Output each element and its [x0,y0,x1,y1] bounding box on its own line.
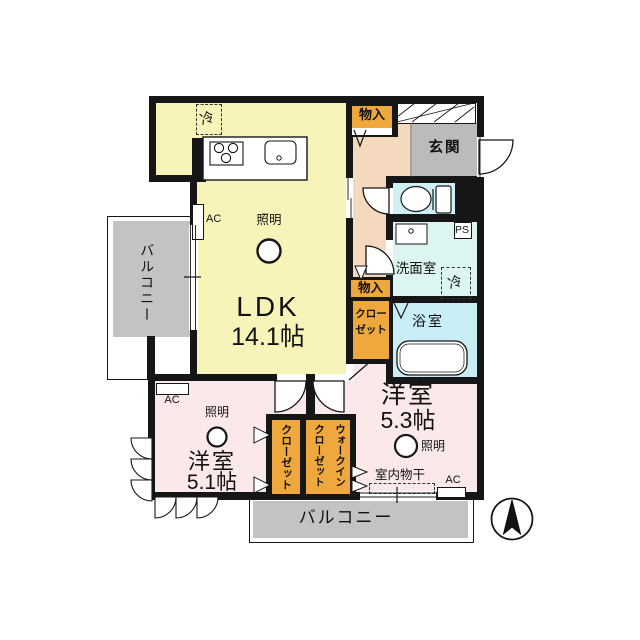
storage-label-walk-in-closet: ウォークイン クローゼット [308,424,350,494]
door-gap-toilet [386,188,393,214]
monoire-top-interior [352,128,392,135]
entrance-porch [397,103,476,124]
wall [149,96,484,103]
sliding-door-ldk-hall [346,178,353,218]
hallway [353,182,389,282]
room-label-balcony-bottom: バルコニー [285,508,407,528]
storage-label-closet-hall: クロー ゼット [353,307,389,339]
room-label-washroom: 洗面室 [390,261,442,277]
ac-label-ldk: AC [206,213,221,226]
door-gap-entrance [477,137,484,177]
ac-unit-ldk [192,204,204,240]
room-size-bedroom53: 5.3帖 [364,407,452,433]
room-size-ldk: 14.1帖 [208,323,328,352]
room-bedroom-53 [315,381,356,414]
wall [149,96,156,182]
indoor-drying-rail [369,483,435,494]
wall-ps-chunk [455,180,477,220]
floorplan-canvas: LDK 14.1帖 洋室 5.1帖 洋室 5.3帖 玄関 洗面室 浴室 バルコニ… [0,0,640,640]
ac-label-bedroom51: AC [158,394,186,407]
storage-label-monoire-top: 物入 [352,108,392,123]
indoor-drying-label: 室内物干 [368,468,432,482]
light-label-bedroom51: 照明 [194,406,240,420]
casement-window [197,497,218,518]
storage-label-closet-bedroom: クローゼット [279,424,292,494]
casement-window [155,497,176,518]
window-ldk-balcony [189,225,198,330]
light-label-bedroom53: 照明 [421,440,461,454]
casement-window [176,497,197,518]
room-label-bedroom53: 洋室 [368,381,448,410]
room-toilet [391,182,455,216]
ps-label: PS [454,224,470,236]
door-gap-bedroom53 [346,364,353,381]
door-arc-entrance [479,140,513,174]
room-size-bedroom51: 5.1帖 [170,471,254,495]
room-bedroom-51 [266,381,306,414]
storage-label-monoire-hall: 物入 [351,281,390,295]
room-label-entrance: 玄関 [422,140,468,157]
wall [149,374,277,381]
room-label-balcony-left: バルコニー [139,243,155,353]
compass-icon [492,499,533,540]
ac-unit-bedroom53 [437,487,466,498]
room-label-bathroom: 浴室 [406,313,450,329]
room-label-ldk: LDK [218,291,318,323]
room-ldk [156,103,346,182]
light-label-ldk: 照明 [246,213,292,227]
ac-label-bedroom53: AC [440,474,466,487]
wall-door-stub [306,374,315,417]
wall [148,374,155,500]
wall-kitchen-stub [192,138,203,182]
